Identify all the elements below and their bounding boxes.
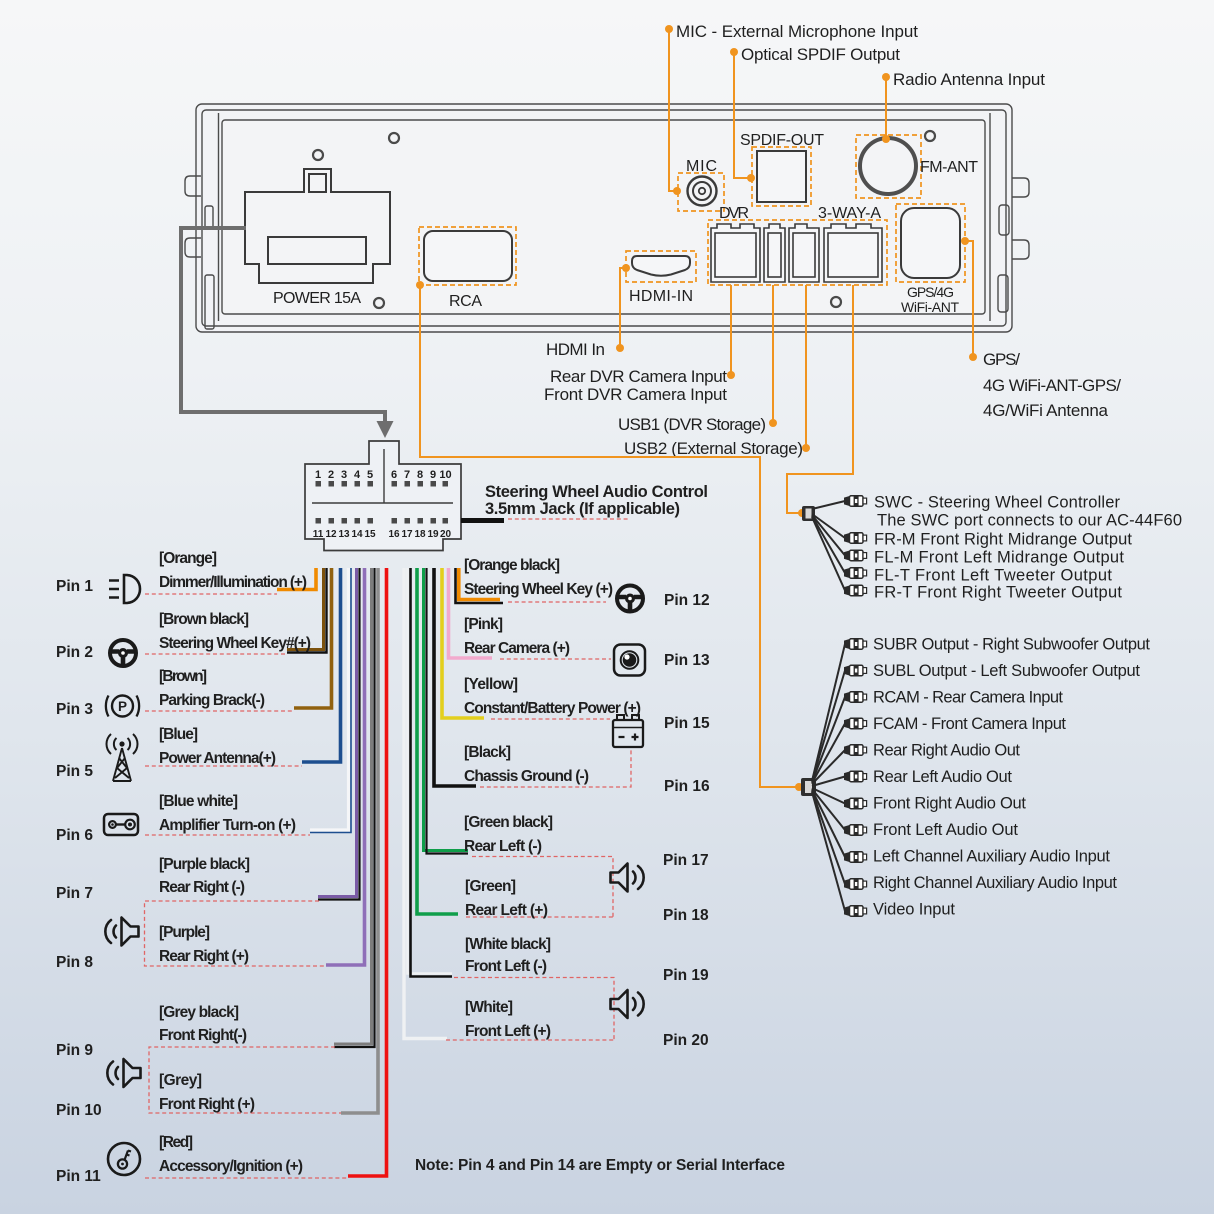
svg-text:FM-ANT: FM-ANT xyxy=(920,159,978,176)
svg-text:Constant/Battery Power (+): Constant/Battery Power (+) xyxy=(464,700,641,717)
svg-text:[Orange]: [Orange] xyxy=(159,550,217,567)
svg-text:FL-M Front Left Midrange Outpu: FL-M Front Left Midrange Output xyxy=(874,549,1124,567)
svg-text:4G WiFi-ANT-GPS/: 4G WiFi-ANT-GPS/ xyxy=(983,376,1121,395)
svg-text:11: 11 xyxy=(313,529,324,540)
svg-text:7: 7 xyxy=(404,469,410,481)
svg-text:[Brown]: [Brown] xyxy=(159,668,207,685)
svg-text:9: 9 xyxy=(430,469,436,481)
svg-text:Rear Left (-): Rear Left (-) xyxy=(464,838,542,855)
svg-text:SUBR Output - Right Subwoofer: SUBR Output - Right Subwoofer Output xyxy=(873,636,1150,654)
svg-text:FL-T Front Left Tweeter Output: FL-T Front Left Tweeter Output xyxy=(874,567,1112,585)
svg-text:RCAM - Rear Camera Input: RCAM - Rear Camera Input xyxy=(873,689,1063,707)
svg-text:13: 13 xyxy=(338,529,350,540)
svg-text:[Red]: [Red] xyxy=(159,1134,193,1151)
svg-text:RCA: RCA xyxy=(449,293,482,310)
svg-text:[Blue white]: [Blue white] xyxy=(159,793,238,810)
svg-text:Rear Camera (+): Rear Camera (+) xyxy=(464,640,570,657)
svg-text:[Green]: [Green] xyxy=(465,878,516,895)
svg-text:6: 6 xyxy=(391,469,397,481)
svg-text:8: 8 xyxy=(417,469,423,481)
svg-text:Front Right Audio Out: Front Right Audio Out xyxy=(873,795,1026,813)
svg-text:SWC - Steering Wheel Controlle: SWC - Steering Wheel Controller xyxy=(874,494,1121,512)
svg-text:20: 20 xyxy=(440,529,452,540)
svg-text:Pin 3: Pin 3 xyxy=(56,701,93,718)
svg-text:Steering Wheel Key (+): Steering Wheel Key (+) xyxy=(464,581,613,598)
svg-text:Pin 12: Pin 12 xyxy=(664,592,710,609)
svg-text:Front Left (-): Front Left (-) xyxy=(465,958,547,975)
svg-text:The SWC port connects to our A: The SWC port connects to our AC-44F60 xyxy=(877,512,1182,530)
svg-text:Rear Right (+): Rear Right (+) xyxy=(159,948,249,965)
svg-text:12: 12 xyxy=(325,529,337,540)
svg-text:15: 15 xyxy=(364,529,376,540)
svg-text:[Grey black]: [Grey black] xyxy=(159,1004,239,1021)
svg-text:HDMI In: HDMI In xyxy=(546,340,605,359)
svg-text:[Yellow]: [Yellow] xyxy=(464,676,518,693)
svg-text:GPS/4G: GPS/4G xyxy=(907,284,954,300)
svg-text:14: 14 xyxy=(351,529,363,540)
svg-text:2: 2 xyxy=(328,469,334,481)
svg-text:Left Channel Auxiliary Audio I: Left Channel Auxiliary Audio Input xyxy=(873,848,1110,866)
svg-text:[Purple]: [Purple] xyxy=(159,924,210,941)
svg-text:Pin 6: Pin 6 xyxy=(56,827,93,844)
svg-text:10: 10 xyxy=(439,469,451,481)
svg-text:FCAM - Front Camera Input: FCAM - Front Camera Input xyxy=(873,715,1066,733)
svg-text:4G/WiFi Antenna: 4G/WiFi Antenna xyxy=(983,401,1109,420)
svg-text:[Orange black]: [Orange black] xyxy=(464,557,560,574)
svg-text:Rear DVR Camera Input: Rear DVR Camera Input xyxy=(550,367,727,386)
svg-text:Pin 18: Pin 18 xyxy=(663,907,709,924)
svg-text:Front Right (+): Front Right (+) xyxy=(159,1096,255,1113)
svg-text:USB2 (External Storage): USB2 (External Storage) xyxy=(624,439,803,458)
svg-text:Power Antenna(+): Power Antenna(+) xyxy=(159,750,276,767)
svg-text:Pin 16: Pin 16 xyxy=(664,778,710,795)
svg-text:Pin 10: Pin 10 xyxy=(56,1102,102,1119)
svg-text:Pin 5: Pin 5 xyxy=(56,763,93,780)
svg-text:[White]: [White] xyxy=(465,999,513,1016)
svg-text:Steering Wheel Key#(+): Steering Wheel Key#(+) xyxy=(159,635,311,652)
svg-text:Pin 1: Pin 1 xyxy=(56,578,93,595)
svg-text:WiFi-ANT: WiFi-ANT xyxy=(901,299,959,315)
svg-text:Note: Pin 4 and Pin 14 are Emp: Note: Pin 4 and Pin 14 are Empty or Seri… xyxy=(415,1157,785,1174)
svg-text:[Brown black]: [Brown black] xyxy=(159,611,249,628)
svg-text:FR-M Front Right Midrange Outp: FR-M Front Right Midrange Output xyxy=(874,531,1132,549)
svg-text:Radio Antenna Input: Radio Antenna Input xyxy=(893,70,1045,89)
svg-text:SPDIF-OUT: SPDIF-OUT xyxy=(740,132,824,149)
svg-text:16: 16 xyxy=(388,529,400,540)
svg-text:FR-T Front Right Tweeter Outpu: FR-T Front Right Tweeter Output xyxy=(874,584,1122,602)
svg-text:4: 4 xyxy=(354,469,361,481)
svg-text:Pin 7: Pin 7 xyxy=(56,885,93,902)
svg-text:Chassis Ground (-): Chassis Ground (-) xyxy=(464,768,589,785)
svg-text:Pin 17: Pin 17 xyxy=(663,852,709,869)
svg-text:Rear Left (+): Rear Left (+) xyxy=(465,902,548,919)
svg-text:Parking Brack(-): Parking Brack(-) xyxy=(159,692,265,709)
svg-text:Pin 15: Pin 15 xyxy=(664,715,710,732)
svg-text:[Blue]: [Blue] xyxy=(159,726,198,743)
svg-text:Pin 9: Pin 9 xyxy=(56,1042,93,1059)
svg-text:USB1 (DVR Storage): USB1 (DVR Storage) xyxy=(618,415,766,434)
svg-text:[Green black]: [Green black] xyxy=(464,814,553,831)
svg-text:Pin 2: Pin 2 xyxy=(56,644,93,661)
svg-text:Dimmer/Illumination (+): Dimmer/Illumination (+) xyxy=(159,574,307,591)
svg-text:Pin 20: Pin 20 xyxy=(663,1032,709,1049)
svg-text:Front Left (+): Front Left (+) xyxy=(465,1023,551,1040)
svg-text:Steering Wheel Audio Control: Steering Wheel Audio Control xyxy=(485,483,708,501)
svg-text:GPS/: GPS/ xyxy=(983,350,1020,369)
svg-text:[Grey]: [Grey] xyxy=(159,1072,202,1089)
svg-text:[Black]: [Black] xyxy=(464,744,511,761)
svg-text:Pin 8: Pin 8 xyxy=(56,954,93,971)
svg-text:Amplifier Turn-on (+): Amplifier Turn-on (+) xyxy=(159,817,296,834)
svg-text:SUBL Output - Left Subwoofer O: SUBL Output - Left Subwoofer Output xyxy=(873,662,1140,680)
svg-text:Rear Right (-): Rear Right (-) xyxy=(159,879,245,896)
svg-text:1: 1 xyxy=(315,469,321,481)
svg-text:Pin 11: Pin 11 xyxy=(56,1168,101,1185)
svg-text:Optical SPDIF Output: Optical SPDIF Output xyxy=(741,45,900,64)
svg-text:Video Input: Video Input xyxy=(873,901,955,919)
svg-text:[White black]: [White black] xyxy=(465,936,551,953)
svg-text:MIC - External Microphone Inpu: MIC - External Microphone Input xyxy=(676,22,918,41)
svg-text:3.5mm Jack (If applicable): 3.5mm Jack (If applicable) xyxy=(485,500,680,518)
svg-text:19: 19 xyxy=(427,529,439,540)
svg-text:MIC: MIC xyxy=(686,158,717,175)
svg-text:18: 18 xyxy=(414,529,426,540)
svg-text:[Purple black]: [Purple black] xyxy=(159,856,250,873)
svg-text:Front DVR Camera Input: Front DVR Camera Input xyxy=(544,385,727,404)
svg-text:Accessory/Ignition (+): Accessory/Ignition (+) xyxy=(159,1158,303,1175)
svg-text:P: P xyxy=(118,699,127,714)
svg-text:Pin 19: Pin 19 xyxy=(663,967,709,984)
svg-text:HDMI-IN: HDMI-IN xyxy=(629,288,693,305)
svg-text:5: 5 xyxy=(367,469,373,481)
svg-text:Right Channel Auxiliary Audio: Right Channel Auxiliary Audio Input xyxy=(873,874,1117,892)
svg-text:[Pink]: [Pink] xyxy=(464,616,503,633)
svg-text:Rear Right Audio Out: Rear Right Audio Out xyxy=(873,742,1020,760)
svg-text:Front Right(-): Front Right(-) xyxy=(159,1027,247,1044)
svg-text:Pin 13: Pin 13 xyxy=(664,652,710,669)
svg-text:POWER 15A: POWER 15A xyxy=(273,290,361,307)
svg-text:Front Left Audio Out: Front Left Audio Out xyxy=(873,821,1018,839)
svg-text:Rear Left Audio Out: Rear Left Audio Out xyxy=(873,768,1012,786)
svg-text:17: 17 xyxy=(401,529,413,540)
svg-text:3: 3 xyxy=(341,469,347,481)
